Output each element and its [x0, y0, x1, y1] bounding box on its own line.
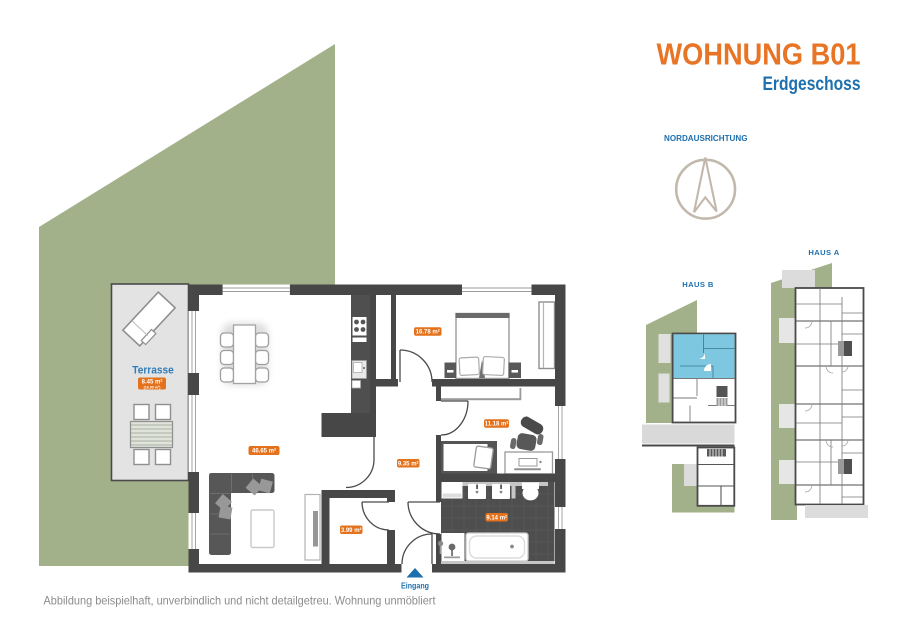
svg-text:NORDAUSRICHTUNG: NORDAUSRICHTUNG [664, 133, 748, 143]
svg-text:16.78 m²: 16.78 m² [416, 329, 440, 336]
svg-text:WOHNUNG B01: WOHNUNG B01 [657, 37, 861, 72]
svg-text:Erdgeschoss: Erdgeschoss [763, 73, 861, 95]
svg-text:9.14 m²: 9.14 m² [486, 514, 507, 521]
svg-text:HAUS A: HAUS A [808, 248, 839, 257]
svg-text:HAUS B: HAUS B [682, 280, 714, 289]
svg-text:(16.90 m²): (16.90 m²) [144, 386, 162, 390]
svg-text:9.35 m²: 9.35 m² [398, 460, 419, 467]
svg-text:Eingang: Eingang [401, 582, 429, 591]
svg-text:11.18 m²: 11.18 m² [485, 421, 509, 428]
svg-text:8.45 m²: 8.45 m² [142, 379, 163, 386]
svg-text:Abbildung beispielhaft, unverb: Abbildung beispielhaft, unverbindlich un… [44, 594, 437, 608]
svg-text:46.65 m²: 46.65 m² [252, 448, 276, 455]
svg-text:3.99 m²: 3.99 m² [341, 527, 362, 534]
svg-text:Terrasse: Terrasse [132, 365, 174, 377]
